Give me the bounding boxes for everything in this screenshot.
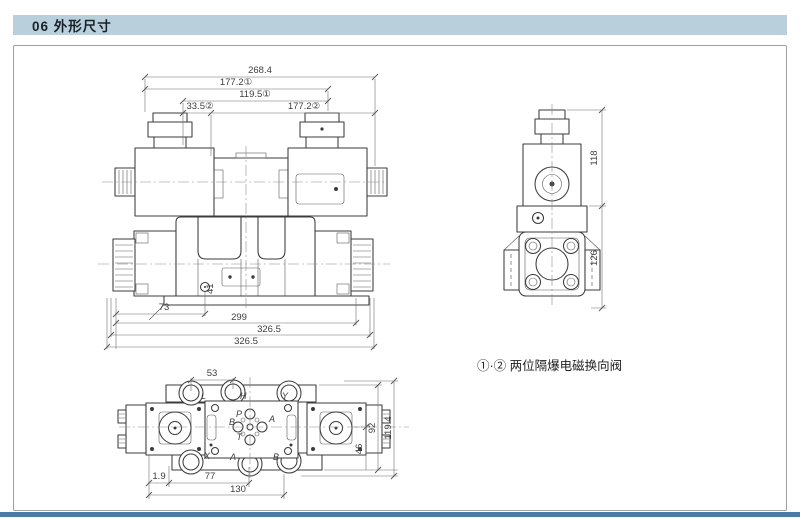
- side-view: 118 126: [504, 104, 606, 311]
- pilot-valve-body: [214, 158, 288, 216]
- front-view-bottom-dimensions: 73 299 326.5 326.5: [104, 292, 377, 350]
- dim-73: 73: [159, 302, 170, 313]
- dim-1-9: 1.9: [152, 471, 165, 482]
- dim-118: 118: [589, 150, 600, 165]
- dim-130: 130: [230, 484, 246, 495]
- knurled-cap-right: [351, 239, 373, 291]
- cable-gland-right: [300, 113, 344, 148]
- bottom-view-cap-left: [126, 405, 146, 453]
- dim-77: 77: [205, 471, 216, 482]
- port-label-bottom-b: B: [273, 452, 279, 462]
- port-label-p: P: [236, 409, 242, 419]
- dim-326-5-b: 326.5: [234, 336, 258, 347]
- drawing-panel: 41 268.4: [13, 45, 787, 511]
- dim-53: 53: [207, 368, 218, 379]
- catalog-page: 06 外形尺寸: [0, 0, 800, 519]
- dimension-drawing: 41 268.4: [14, 46, 786, 508]
- section-header: 06 外形尺寸: [13, 15, 787, 35]
- cable-gland-left: [148, 113, 192, 148]
- port-label-top-2: H: [240, 391, 247, 401]
- port-label-bottom-a: A: [229, 452, 236, 462]
- dim-268-4: 268.4: [248, 65, 272, 76]
- dim-46: 46: [354, 444, 365, 455]
- dim-326-5-a: 326.5: [257, 324, 281, 335]
- hole-dimension-label: 41: [205, 283, 216, 294]
- dim-177-2-2: 177.2②: [288, 101, 321, 112]
- dim-177-2-1: 177.2①: [220, 77, 253, 88]
- port-label-bottom-x: X: [203, 451, 211, 461]
- port-label-top-3: Y: [282, 391, 289, 401]
- section-title: 06 外形尺寸: [32, 15, 112, 35]
- dim-126: 126: [589, 250, 600, 266]
- port-label-a: A: [268, 414, 275, 424]
- bottom-view: P A B T L H Y X A B: [118, 368, 409, 499]
- footer-bar: [0, 512, 800, 517]
- dim-119-4: 119.4: [383, 416, 394, 439]
- legend-note: ①·② 两位隔爆电磁换向阀: [477, 355, 622, 374]
- bottom-view-solenoid-left: [146, 403, 205, 455]
- main-valve-body: 41: [113, 217, 373, 320]
- dim-119-5-1: 119.5①: [239, 89, 271, 100]
- pilot-interface-plate: P A B T: [205, 401, 298, 458]
- front-view: 41 268.4: [98, 65, 390, 350]
- knurled-cap-left: [113, 239, 135, 291]
- port-label-top-1: L: [201, 391, 206, 401]
- dim-33-5-2: 33.5②: [186, 101, 213, 112]
- dim-299: 299: [231, 312, 247, 323]
- solenoid-assembly: [115, 113, 387, 216]
- valve-casting: [176, 217, 315, 296]
- subplate: [164, 296, 369, 305]
- port-label-b: B: [229, 417, 235, 427]
